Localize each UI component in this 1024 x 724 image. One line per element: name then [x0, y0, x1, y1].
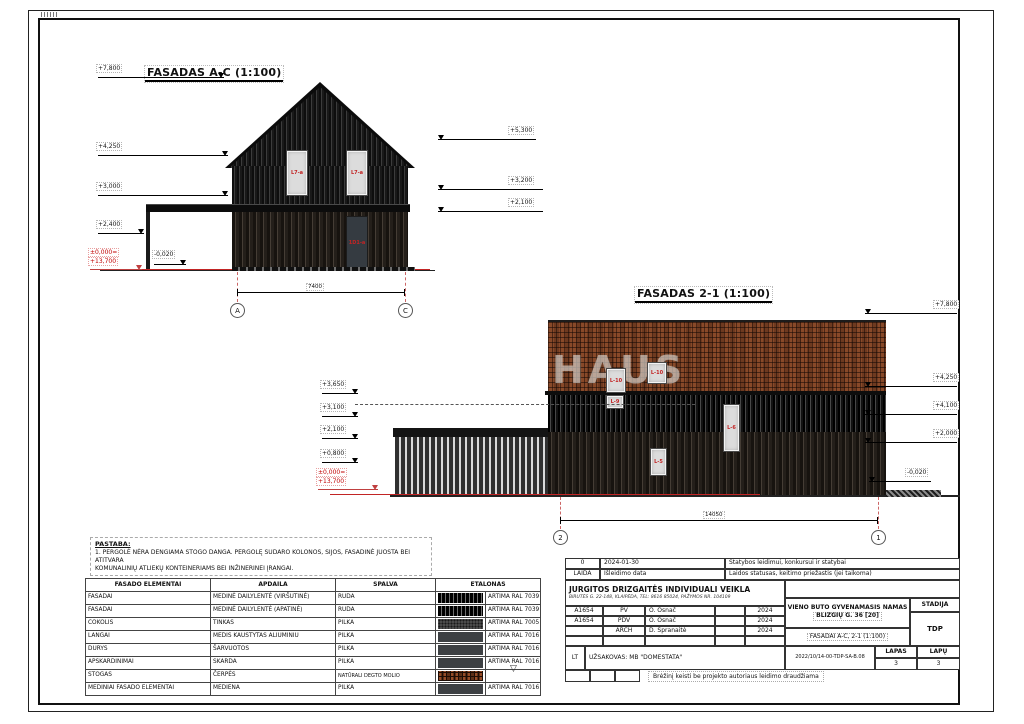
signature-cell [715, 606, 745, 616]
role-cell: PV [603, 606, 645, 616]
elevation-marker: +2,100 [508, 198, 534, 207]
lapu-value-cell: 3 [917, 658, 960, 670]
object-line: BLIZGIŲ G. 36 [20] [813, 612, 882, 621]
table-row: COKOLIS TINKAS PILKA ARTIMA RAL 7005 [86, 618, 541, 631]
year-cell: 2024 [745, 616, 785, 626]
cell-spalva: PILKA [336, 631, 436, 644]
facade-ac-ground-hatch [232, 267, 415, 271]
door-tag: 1D1-a [347, 241, 367, 246]
table-row: DURYS ŠARVUOTOS PILKA ARTIMA RAL 7016 [86, 644, 541, 657]
empty-cell [745, 636, 785, 646]
elevation-marker: +4,100 [933, 401, 959, 410]
table-row: APSKARDINIMAI SKARDA PILKA ARTIMA RAL 70… [86, 657, 541, 670]
cert-cell: A1654 [565, 606, 603, 616]
elevation-label: +3,000 [96, 182, 122, 191]
elevation-marker: +3,100 [320, 403, 346, 412]
note-title: PASTABA: [95, 540, 131, 548]
dimension-label: 14050 [703, 511, 725, 519]
lapas-label-cell: LAPAS [875, 646, 917, 658]
elevation-marker: +5,300 [508, 126, 534, 135]
axis-letter: C [403, 307, 408, 315]
name-cell: O. Osnač [645, 616, 715, 626]
table-row: MEDINIAI FASADO ELEMENTAI MEDIENA PILKA … [86, 683, 541, 696]
doc-number-cell: 2022/10/14-00-TDP-SA-B.08 [785, 646, 875, 670]
elevation-label: +7,800 [933, 300, 959, 309]
facade-21-wall-window-2: L-5 [650, 448, 667, 476]
axis-bubble-a: A [230, 303, 245, 318]
facade-21-garage-wall [395, 437, 548, 495]
facade-21-band-window: L-9 [606, 395, 624, 409]
cell-apdaila: MEDIS KAUSTYTAS ALIUMINIU [211, 631, 336, 644]
drawing-sheet: FASADAS A-C (1:100) L7-a L7-a 1D1-a +7,8… [0, 0, 1024, 724]
facade-21-lower-wall [548, 432, 886, 495]
elevation-label: -0,020 [152, 250, 175, 259]
facade-ac-window-1: L7-a [286, 150, 308, 196]
lapu-label-cell: LAPŲ [917, 646, 960, 658]
cert-cell: A1654 [565, 616, 603, 626]
elevation-label: +13,700 [316, 477, 346, 486]
table-row: STOGAS ČERPĖS NATŪRALI DEGTO MOLIO [86, 670, 541, 683]
elevation-label: +3,200 [508, 176, 534, 185]
edit-note: Brėžinį keisti be projekto autoriaus lei… [648, 671, 824, 682]
elevation-label: +4,100 [933, 401, 959, 410]
cell-swatch [436, 644, 486, 657]
facade-ac-window-2: L7-a [346, 150, 368, 196]
col-header: FASADO ELEMENTAI [86, 579, 211, 592]
stadija-label-cell: STADIJA [910, 598, 960, 612]
facade-21-ground-hatch [886, 490, 941, 497]
empty-cell [715, 636, 745, 646]
cell-element: FASADAI [86, 605, 211, 618]
dimension-label: 7400 [306, 283, 324, 291]
elevation-marker: +7,800 [933, 300, 959, 309]
facade-ac-lower-wall [232, 212, 408, 270]
elevation-marker: +2,400 [96, 220, 122, 229]
elevation-marker: +7,800 [96, 64, 122, 73]
axis-bubble-1: 1 [871, 530, 886, 545]
elevation-label: +2,400 [96, 220, 122, 229]
company-name: JURGITOS DRIZGAITĖS INDIVIDUALI VEIKLA [569, 586, 750, 595]
axis-number: 2 [558, 534, 562, 542]
elevation-marker: +2,000 [933, 429, 959, 438]
name-cell: D. Spranaitė [645, 626, 715, 636]
cell-swatch [436, 670, 486, 683]
elevation-label: +2,100 [320, 425, 346, 434]
name-cell: O. Osnač [645, 606, 715, 616]
facade-21-ground-line [390, 495, 960, 497]
company-info: BIRUTĖS G. 22-148, KLAIPĖDA, TEL: 8616 8… [569, 595, 731, 600]
col-header: SPALVA [336, 579, 436, 592]
facade-21-roof-window-2: L-10 [647, 362, 667, 384]
elevation-label: +4,250 [96, 142, 122, 151]
status-label-cell: Laidos statusas, keitimo priežastis (jei… [725, 569, 960, 580]
cell-element: STOGAS [86, 670, 211, 683]
cell-apdaila: ŠARVUOTOS [211, 644, 336, 657]
cell-spalva: RUDA [336, 592, 436, 605]
rev-number-cell: 0 [565, 558, 600, 569]
facade-ac-upper-wall [232, 166, 408, 206]
window-tag: L-6 [724, 426, 739, 431]
object-name-cell: VIENO BUTO GYVENAMASIS NAMAS BLIZGIŲ G. … [785, 598, 910, 628]
laida-label-cell: LAIDA [565, 569, 600, 580]
elevation-label: ±0,000= [316, 468, 347, 477]
company-cell: JURGITOS DRIZGAITĖS INDIVIDUALI VEIKLA B… [565, 580, 785, 606]
table-row: LANGAI MEDIS KAUSTYTAS ALIUMINIU PILKA A… [86, 631, 541, 644]
facade-21-garage-beam [393, 428, 553, 437]
cell-spalva: PILKA [336, 644, 436, 657]
rev-status-cell: Statybos leidimui, konkursui ir statybai [725, 558, 960, 569]
cell-element: MEDINIAI FASADO ELEMENTAI [86, 683, 211, 696]
cell-spalva: RUDA [336, 605, 436, 618]
table-row: FASADAI MEDINĖ DAILYLENTĖ (VIRŠUTINĖ) RU… [86, 592, 541, 605]
facade-ac-door: 1D1-a [346, 216, 368, 269]
dimension-line [237, 292, 405, 293]
empty-cell [565, 670, 590, 682]
cell-ral: ARTIMA RAL 7005 [486, 618, 541, 631]
cell-element: APSKARDINIMAI [86, 657, 211, 670]
axis-bubble-2: 2 [553, 530, 568, 545]
cell-swatch [436, 657, 486, 670]
elevation-marker: +2,100 [320, 425, 346, 434]
elevation-marker-zero: ±0,000= +13,700 [316, 468, 347, 486]
rev-date-cell: 2024-01-30 [600, 558, 725, 569]
facade-ac-canopy-beam [146, 204, 410, 212]
elevation-marker: +0,800 [320, 449, 346, 458]
drawing-title: FASADAI A-C, 2-1 (1:100) [807, 633, 888, 642]
cell-apdaila: TINKAS [211, 618, 336, 631]
axis-number: 1 [876, 534, 880, 542]
lapas-value-cell: 3 [875, 658, 917, 670]
role-cell: ARCH [603, 626, 645, 636]
year-cell: 2024 [745, 606, 785, 616]
cell-ral: ARTIMA RAL 7016 [486, 631, 541, 644]
year-cell: 2024 [745, 626, 785, 636]
table-row: FASADAI MEDINĖ DAILYLENTĖ (APATINĖ) RUDA… [86, 605, 541, 618]
extension-line [560, 497, 561, 529]
facade-21-roof-window-1: L-10 [606, 368, 626, 393]
note-block: PASTABA: 1. PERGOLĖ NĖRA DENGIAMA STOGO … [90, 537, 432, 576]
elevation-marker: +4,250 [96, 142, 122, 151]
cell-element: LANGAI [86, 631, 211, 644]
elevation-marker: +4,250 [933, 373, 959, 382]
elevation-label: +3,650 [320, 380, 346, 389]
col-header: ETALONAS [436, 579, 541, 592]
cell-element: FASADAI [86, 592, 211, 605]
empty-cell [785, 580, 960, 598]
cell-apdaila: MEDINĖ DAILYLENTĖ (VIRŠUTINĖ) [211, 592, 336, 605]
cell-spalva: PILKA [336, 657, 436, 670]
empty-cell [645, 636, 715, 646]
elevation-label: +3,100 [320, 403, 346, 412]
extension-line [405, 272, 406, 302]
cert-cell [565, 626, 603, 636]
cell-spalva: PILKA [336, 683, 436, 696]
empty-cell [603, 636, 645, 646]
cell-apdaila: MEDINĖ DAILYLENTĖ (APATINĖ) [211, 605, 336, 618]
role-cell: PDV [603, 616, 645, 626]
empty-cell [590, 670, 615, 682]
cell-spalva: NATŪRALI DEGTO MOLIO [336, 670, 436, 683]
revision-triangle-icon: ▽ [510, 664, 517, 674]
axis-letter: A [235, 307, 240, 315]
facade-21-title: FASADAS 2-1 (1:100) [635, 287, 772, 303]
reference-dash-line [355, 404, 695, 405]
elevation-label: ±0,000= [88, 248, 119, 257]
elevation-label: +2,000 [933, 429, 959, 438]
materials-table: FASADO ELEMENTAI APDAILA SPALVA ETALONAS… [85, 578, 541, 696]
facade-ac-pergola-post [146, 212, 150, 270]
cell-element: COKOLIS [86, 618, 211, 631]
facade-21-upper-band [548, 395, 886, 432]
object-line: VIENO BUTO GYVENAMASIS NAMAS [788, 605, 908, 612]
extension-line [237, 272, 238, 302]
cell-swatch [436, 605, 486, 618]
extension-line [878, 497, 879, 529]
cell-apdaila: ČERPĖS [211, 670, 336, 683]
window-tag: L7-a [347, 171, 367, 176]
cell-element: DURYS [86, 644, 211, 657]
elevation-label: +4,250 [933, 373, 959, 382]
window-tag: L-5 [651, 460, 666, 465]
elevation-label: +7,800 [96, 64, 122, 73]
empty-cell [565, 636, 603, 646]
elevation-label: +13,700 [88, 257, 118, 266]
elevation-label: -0,020 [905, 468, 928, 477]
stadija-value-cell: TDP [910, 612, 960, 646]
cell-ral: ARTIMA RAL 7016 [486, 644, 541, 657]
corner-stamp [41, 12, 57, 17]
window-tag: L-10 [607, 379, 625, 384]
cell-ral: ARTIMA RAL 7039 [486, 592, 541, 605]
cell-spalva: PILKA [336, 618, 436, 631]
elevation-marker: -0,020 [152, 250, 175, 259]
elevation-marker-zero: ±0,000= +13,700 [88, 248, 119, 266]
elevation-marker: -0,020 [905, 468, 928, 477]
elevation-label: +5,300 [508, 126, 534, 135]
cell-swatch [436, 631, 486, 644]
elevation-marker: +3,200 [508, 176, 534, 185]
window-tag: L-10 [648, 371, 666, 376]
elevation-marker: +3,650 [320, 380, 346, 389]
cell-apdaila: SKARDA [211, 657, 336, 670]
empty-cell [615, 670, 640, 682]
signature-cell [715, 626, 745, 636]
lang-cell: LT [565, 646, 585, 670]
date-label-cell: Išleidimo data [600, 569, 725, 580]
client-cell: UŽSAKOVAS: MB "DOMESTATA" [585, 646, 785, 670]
facade-ac-title: FASADAS A-C (1:100) [145, 66, 283, 82]
axis-bubble-c: C [398, 303, 413, 318]
col-header: APDAILA [211, 579, 336, 592]
cell-swatch [436, 592, 486, 605]
elevation-label: +2,100 [508, 198, 534, 207]
window-tag: L7-a [287, 171, 307, 176]
facade-21-wall-window-1: L-6 [723, 404, 740, 452]
cell-swatch [436, 618, 486, 631]
cell-ral: ARTIMA RAL 7016 [486, 683, 541, 696]
cell-ral: ARTIMA RAL 7039 [486, 605, 541, 618]
cell-apdaila: MEDIENA [211, 683, 336, 696]
elevation-label: +0,800 [320, 449, 346, 458]
note-line: KOMUNALINIŲ ATLIEKŲ KONTEINERIAMS BEI IN… [95, 565, 293, 572]
drawing-title-cell: FASADAI A-C, 2-1 (1:100) [785, 628, 910, 646]
cell-swatch [436, 683, 486, 696]
table-header-row: FASADO ELEMENTAI APDAILA SPALVA ETALONAS [86, 579, 541, 592]
elevation-marker: +3,000 [96, 182, 122, 191]
note-line: 1. PERGOLĖ NĖRA DENGIAMA STOGO DANGA. PE… [95, 549, 410, 564]
signature-cell [715, 616, 745, 626]
dimension-line [560, 520, 878, 521]
